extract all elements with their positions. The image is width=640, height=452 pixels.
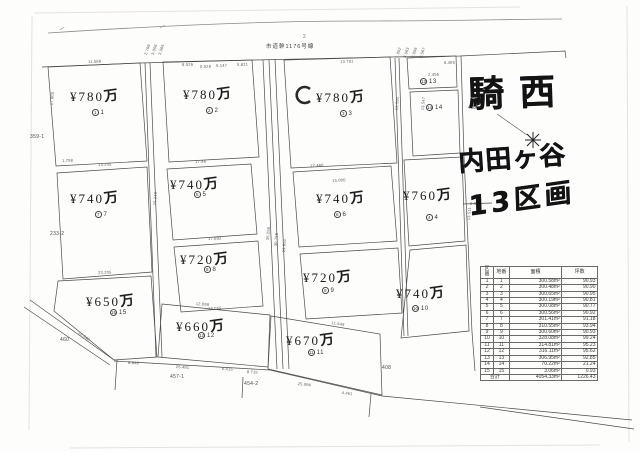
dimension-label: 23.205 xyxy=(98,270,112,275)
dimension-label: 17.46 xyxy=(195,159,206,164)
plot-price: ¥650万 xyxy=(86,291,136,311)
plot-price: ¥670万 xyxy=(286,330,336,350)
dimension-label: 35.256 xyxy=(265,227,271,241)
col-header-chiban: 地番 xyxy=(493,267,509,279)
plot-number: 33 xyxy=(340,110,352,117)
adjacent-lot-label: 408 xyxy=(382,365,391,371)
benchmark-leader-line xyxy=(497,114,527,135)
dimension-label: 6.526 xyxy=(182,62,193,67)
plot-number: 1515 xyxy=(110,309,127,316)
dimension-label: 17.055 xyxy=(208,306,222,311)
road-name-label: 市道幹1176号線 xyxy=(266,42,314,50)
total-label: 合計 xyxy=(481,374,510,380)
total-tsubo: 1226.43 xyxy=(562,374,598,380)
dimension-label: 17.892 xyxy=(208,236,222,241)
plot-price: ¥780万 xyxy=(183,84,233,104)
dimension-label: 13.591 xyxy=(394,97,400,111)
col-header-menseki: 面積 xyxy=(509,267,561,279)
dimension-label: 24.851 xyxy=(281,239,287,253)
table-header-row: 区画 地番 面積 坪数 xyxy=(481,267,598,279)
plot-table-body: 11300.58m²90.9322300.48m²90.9033300.65m²… xyxy=(481,278,598,374)
plot-price: ¥760万 xyxy=(403,185,453,205)
dimension-label: 1.798 xyxy=(62,158,73,163)
dimension-label: 5.821 xyxy=(237,62,248,67)
plot-price: ¥780万 xyxy=(70,86,120,106)
plot-number: 99 xyxy=(322,287,334,294)
plot-number: 55 xyxy=(194,191,206,198)
plot-number: 1111 xyxy=(308,349,324,356)
adjacent-lot-label: 359-1 xyxy=(30,134,44,140)
dimension-label: 2.456 xyxy=(428,72,439,77)
plot-price: ¥720万 xyxy=(303,267,353,287)
dimension-label: 15.000 xyxy=(332,177,346,183)
dimension-label: 15.240 xyxy=(152,192,158,206)
scan-artifact-crescent xyxy=(297,87,310,103)
total-area: 4054.33m² xyxy=(509,374,561,380)
plot-number: 1414 xyxy=(426,104,443,111)
plot-price: ¥780万 xyxy=(316,87,366,107)
dimension-label: 6.415 xyxy=(222,366,233,372)
plot-number: 1212 xyxy=(198,332,215,339)
handwritten-area-name: 騎西 xyxy=(467,62,571,118)
adjacent-lot-label: 460 xyxy=(60,337,69,343)
col-header-kukaku: 区画 xyxy=(481,267,494,279)
dimension-label: 30.756 xyxy=(273,233,279,247)
plot-price: ¥740万 xyxy=(396,283,446,303)
plot-number: 1010 xyxy=(412,305,429,312)
top-road-line xyxy=(48,19,562,33)
plot-number: 77 xyxy=(95,211,107,218)
dimension-label: 17.805 xyxy=(49,92,55,106)
plot-price: ¥740万 xyxy=(70,188,120,208)
table-total-row: 合計 4054.33m² 1226.43 xyxy=(481,374,598,380)
dimension-label: 11.586 xyxy=(88,59,101,64)
dimension-label: 6.485 xyxy=(444,60,455,65)
plot-number: 22 xyxy=(206,107,218,114)
dimension-label: 5.147 xyxy=(216,63,227,68)
adjacent-lot-label: 454-2 xyxy=(244,381,258,387)
plot-number: 66 xyxy=(334,211,346,218)
dimension-label: 17.460 xyxy=(310,163,324,168)
plot-number: 1313 xyxy=(420,78,437,85)
plot-price: ¥740万 xyxy=(316,188,366,208)
dimension-label: 25.481 xyxy=(176,364,190,370)
dimension-label: 12.098 xyxy=(196,301,210,307)
plot-number: 88 xyxy=(204,266,216,273)
plot-number: 44 xyxy=(426,214,438,221)
dimension-label: 13.791 xyxy=(340,59,354,64)
road-mark: 2 xyxy=(303,34,306,40)
adjacent-lot-label: 457-1 xyxy=(170,374,184,380)
col-header-tsubo: 坪数 xyxy=(562,267,598,279)
dimension-label: 8.715 xyxy=(247,369,258,375)
dimension-label: 13.205 xyxy=(98,162,112,167)
adjacent-lot-label: 233-2 xyxy=(50,231,64,237)
plot-number: 11 xyxy=(92,109,104,116)
dimension-label: 9.940 xyxy=(128,360,139,365)
dimension-label: 0.528 xyxy=(200,64,211,69)
scanned-plot-map-page: { "handwriting": { "line1": "騎西", "line2… xyxy=(0,0,640,452)
area-table: 区画 地番 面積 坪数 11300.58m²90.9322300.48m²90.… xyxy=(480,266,598,381)
